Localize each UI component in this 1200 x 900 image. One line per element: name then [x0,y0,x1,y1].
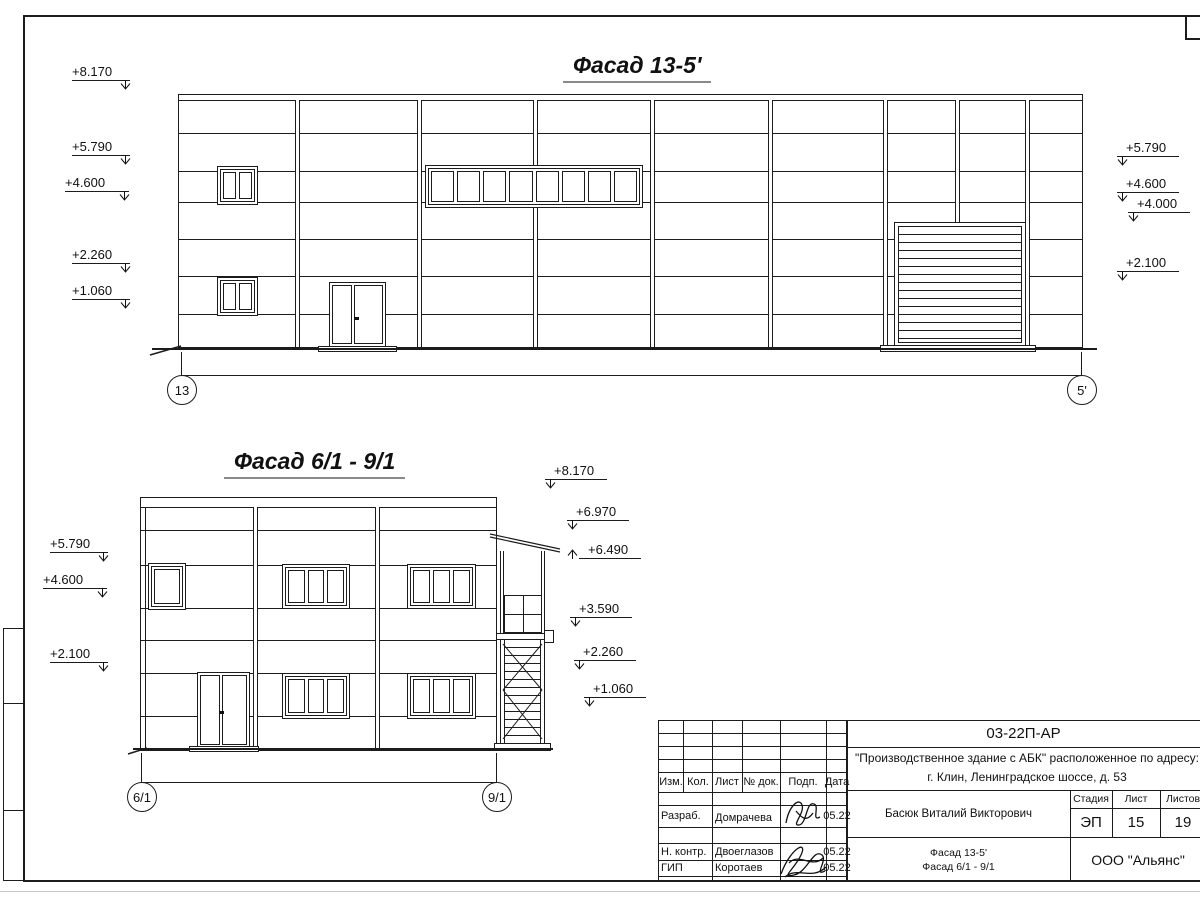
frame-side-stamp-cell [3,628,24,704]
sheets-total: 19 [1160,808,1200,837]
col-header: Подп. [780,772,826,792]
elevation-arrow-icon [544,479,557,489]
staff-role: ГИП [661,860,713,876]
facade1-sectional-gate [894,222,1026,347]
axis-bubble-9-1: 9/1 [482,782,512,812]
facade1-pilaster [295,100,300,347]
facade2-window [282,673,350,719]
elevation-arrow-icon [97,552,110,562]
sheet-label: Лист [1112,790,1160,808]
facade1-pilaster [955,100,960,222]
gate-slats [898,226,1022,343]
elevation-arrow-icon [1116,156,1129,166]
elevation-mark: +3.590 [570,601,632,618]
elevation-mark: +4.600 [65,175,129,192]
elevation-arrow-icon [118,191,131,201]
axis-bubble-13: 13 [167,375,197,405]
sheets-label: Листов [1160,790,1200,808]
elevation-arrow-icon [119,80,132,90]
drawing-sheet: Фасад 13-5' 13 5' +8.170 +5.790 [0,0,1200,900]
stair-tower-window [504,595,542,633]
stair-treads [504,640,541,744]
facade2-axis-leader [141,753,142,782]
sheet-edge-shadow [0,891,1200,892]
elevation-arrow-icon [573,660,586,670]
elevation-mark: +8.170 [72,64,130,81]
facade2-entrance-door [197,672,250,748]
facade1-pilaster [650,100,655,347]
col-header: № док. [742,772,780,792]
elevation-mark: +1.060 [584,681,646,698]
facade1-axis-leader [181,352,182,375]
facade2-parapet-line [141,507,496,508]
elevation-mark: +5.790 [1117,140,1179,157]
elevation-mark: +4.600 [43,572,107,589]
elevation-arrow-up-icon [566,549,579,559]
titleblock-line [659,876,847,877]
elevation-arrow-icon [96,588,109,598]
facade2-ground-line [133,748,553,750]
elevation-arrow-icon [566,520,579,530]
sheet-content-title: Фасад 13-5' Фасад 6/1 - 9/1 [847,846,1070,878]
elevation-mark: +2.260 [574,644,636,661]
staff-name: Коротаев [715,860,779,876]
frame-side-stamp-cell [3,810,24,881]
titleblock-line [659,733,847,734]
titleblock-line [659,746,847,747]
titleblock-line [847,747,1200,748]
facade1-window [217,277,258,316]
facade1-pilaster [533,100,538,347]
staff-name: Двоеглазов [715,843,779,860]
col-header: Кол. [684,772,712,792]
axis-bubble-5: 5' [1067,375,1097,405]
facade2-pilaster [375,507,380,750]
elevation-mark: +5.790 [72,139,130,156]
col-header: Лист [712,772,742,792]
stair-bracket [544,630,554,643]
sheet-number: 15 [1112,808,1160,837]
frame-top-line [23,15,1200,17]
facade2-axis-leader [496,753,497,782]
document-code: 03-22П-АР [847,720,1200,747]
elevation-arrow-icon [569,617,582,627]
titleblock-line [780,720,781,882]
facade1-pilaster [883,100,888,347]
facade1-title: Фасад 13-5' [563,52,711,83]
elevation-mark: +2.260 [72,247,130,264]
elevation-arrow-icon [119,299,132,309]
titleblock-line [659,792,847,793]
facade1-ground-line [152,348,1097,350]
staff-date: 05.22 [826,860,848,876]
staff-date: 05.22 [826,843,848,860]
facade2-window [407,564,476,609]
elevation-arrow-icon [119,263,132,273]
facade2-joint-line [141,640,496,641]
door-handle [219,711,224,714]
col-header: Дата [826,772,848,792]
elevation-mark: +6.970 [567,504,629,521]
facade1-pilaster [768,100,773,347]
stair-tower-roof [490,534,560,552]
elevation-arrow-icon [97,662,110,672]
elevation-mark: +4.000 [1128,196,1190,213]
elevation-arrow-icon [1116,271,1129,281]
elevation-mark: +4.600 [1117,176,1179,193]
elevation-mark: +2.100 [50,646,108,663]
facade2-window [407,673,476,719]
staff-role: Н. контр. [661,843,713,860]
elevation-mark: +6.490 [579,542,641,559]
stage-label: Стадия [1070,790,1112,808]
frame-corner-stamp-box [1185,15,1200,40]
elevation-arrow-icon [119,155,132,165]
facade2-pilaster [253,507,258,750]
facade2-joint-line [141,530,496,531]
staff-date: 05.22 [826,805,848,827]
frame-side-stamp-cell [3,703,24,811]
staff-role: Разраб. [661,805,711,827]
elevation-arrow-icon [1127,212,1140,222]
facade2-window [282,564,350,609]
elevation-mark: +2.100 [1117,255,1179,272]
facade1-axis-leader [1081,352,1082,375]
facade2-window [148,563,186,610]
col-header: Изм. [658,772,684,792]
facade1-joint-line [179,133,1082,134]
facade2-title: Фасад 6/1 - 9/1 [224,448,405,479]
facade1-ribbon-window [425,165,643,208]
facade2-axis-dim-line [141,782,496,783]
axis-bubble-6-1: 6/1 [127,782,157,812]
stair-landing-ledge [496,633,549,640]
project-name: "Производственное здание с АБК" располож… [847,749,1200,789]
elevation-mark: +1.060 [72,283,130,300]
elevation-arrow-icon [583,697,596,707]
staff-name: Домрачева [715,807,779,829]
author-name: Басюк Виталий Викторович [847,790,1070,837]
facade1-window [217,166,258,205]
facade1-pilaster [417,100,422,347]
elevation-mark: +8.170 [545,463,607,480]
facade1-entrance-door [329,282,386,347]
external-stair [500,640,545,744]
facade1-parapet-line [179,100,1082,101]
titleblock-line [659,759,847,760]
facade1-axis-dim-line [181,375,1081,376]
door-handle [354,317,359,320]
stage-value: ЭП [1070,808,1112,837]
elevation-mark: +5.790 [50,536,108,553]
organization-name: ООО "Альянс" [1070,837,1200,882]
facade2-edge-line [145,507,146,750]
